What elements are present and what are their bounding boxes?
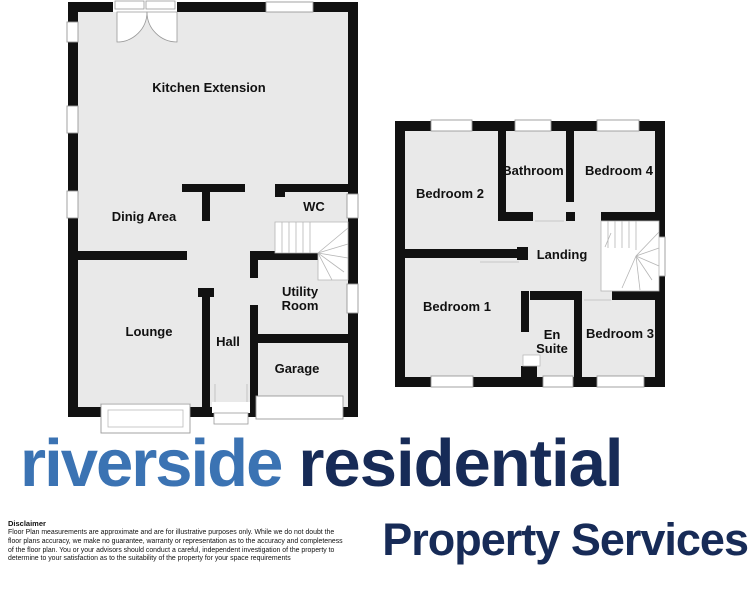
disclaimer-body: Floor Plan measurements are approximate … (8, 529, 348, 564)
wall-dining-divider (202, 192, 210, 221)
label-hall: Hall (216, 334, 240, 349)
wall-bed3-north (612, 291, 660, 300)
wall-ensuite-west (521, 291, 529, 332)
floorplan-page: Kitchen Extension Dinig Area WC Utility … (0, 0, 754, 593)
label-bathroom: Bathroom (502, 163, 563, 178)
window-bottom-bed1 (431, 376, 473, 387)
window-top-bathroom (515, 120, 551, 131)
brand-logo: riverside residential (20, 430, 623, 497)
garage-door (256, 396, 343, 419)
wall-wc-door-jamb (275, 184, 285, 197)
window-left-kitchen-2 (67, 106, 78, 133)
label-ensuite-2: Suite (536, 341, 568, 356)
first-floor-plan: Bedroom 2 Bathroom Bedroom 4 Landing Bed… (400, 120, 665, 387)
brand-property-services: Property Services (382, 514, 748, 566)
ground-floor-plan: Kitchen Extension Dinig Area WC Utility … (67, 1, 358, 433)
wall-utility-west-upper (250, 260, 258, 278)
label-garage: Garage (275, 361, 320, 376)
label-ensuite-1: En (544, 327, 561, 342)
window-right-utility (347, 284, 358, 313)
label-bedroom3: Bedroom 3 (586, 326, 654, 341)
wall-lounge-dining (68, 251, 187, 260)
wall-bed4-door-jamb (566, 212, 575, 221)
wall-lounge-hall (202, 293, 210, 412)
wall-kitchen-south-left (182, 184, 245, 192)
label-dining-area: Dinig Area (112, 209, 177, 224)
label-kitchen-extension: Kitchen Extension (152, 80, 265, 95)
label-wc: WC (303, 199, 325, 214)
wall-bathroom-south (498, 212, 533, 221)
first-floor-stairs (601, 221, 659, 291)
label-utility-2: Room (282, 298, 319, 313)
window-right-wc (347, 194, 358, 218)
ensuite-door (523, 355, 540, 366)
wall-kitchen-south-right (285, 184, 348, 192)
window-bottom-bed3 (597, 376, 644, 387)
label-utility-1: Utility (282, 284, 319, 299)
label-bedroom2: Bedroom 2 (416, 186, 484, 201)
wall-ensuite-stub (521, 366, 537, 382)
wall-bed1-landing (400, 249, 519, 258)
window-left-kitchen-1 (67, 22, 78, 42)
window-top-bed2 (431, 120, 472, 131)
window-bottom-ensuite (543, 376, 573, 387)
brand-word-riverside: riverside (20, 430, 281, 497)
label-lounge: Lounge (126, 324, 173, 339)
floorplans-drawing: Kitchen Extension Dinig Area WC Utility … (0, 0, 754, 440)
wall-garage-north (250, 334, 348, 343)
disclaimer-title: Disclaimer (8, 519, 348, 528)
brand-word-residential: residential (298, 430, 622, 497)
label-landing: Landing (537, 247, 588, 262)
wall-bathroom-bed4 (566, 131, 574, 202)
wall-ensuite-north (530, 291, 574, 300)
wall-ensuite-east (574, 291, 582, 382)
window-left-dining (67, 191, 78, 218)
wall-bed4-south (601, 212, 660, 221)
window-top-bed4 (597, 120, 639, 131)
disclaimer-block: Disclaimer Floor Plan measurements are a… (8, 519, 348, 564)
label-bedroom1: Bedroom 1 (423, 299, 491, 314)
wall-bed1-cap (517, 247, 528, 260)
label-bedroom4: Bedroom 4 (585, 163, 654, 178)
window-top-kitchen (266, 2, 313, 12)
